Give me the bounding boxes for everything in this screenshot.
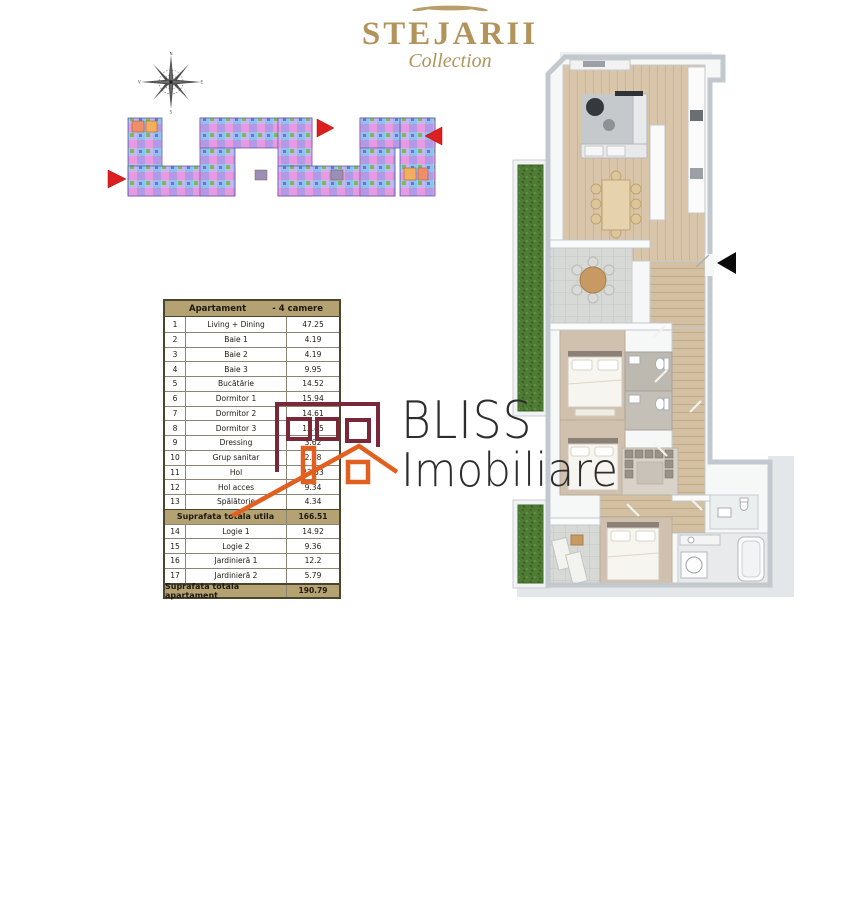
- table-row: 16Jardinieră 112.2: [165, 553, 339, 568]
- area-value: 13.45: [287, 421, 339, 435]
- coffee-table-icon: [603, 119, 615, 131]
- bathroom-3-floor: [710, 495, 758, 529]
- hall-floor-upper: [650, 261, 705, 328]
- room-label: Dormitor 2: [186, 407, 287, 421]
- row-number: 3: [165, 348, 186, 362]
- dining-table: [602, 180, 630, 230]
- table-row: 7Dormitor 214.61: [165, 406, 339, 421]
- kitchen-island: [650, 125, 665, 220]
- site-plan: [105, 108, 450, 203]
- row-number: 1: [165, 317, 186, 332]
- room-label: Baie 3: [186, 362, 287, 376]
- area-value: 14.52: [287, 377, 339, 391]
- area-value: 22.53: [287, 466, 339, 480]
- living-room-furniture: [581, 91, 647, 158]
- row-number: 11: [165, 466, 186, 480]
- row-number: 9: [165, 436, 186, 450]
- area-value: 14.92: [287, 525, 339, 539]
- oak-branch-ornament-icon: [360, 3, 540, 13]
- bedroom-1-furniture: [568, 351, 622, 416]
- armchair-icon: [586, 98, 604, 116]
- row-number: 14: [165, 525, 186, 539]
- table-row: 17Jardinieră 25.79: [165, 568, 339, 583]
- bedroom-3-furniture: [607, 522, 659, 580]
- room-label: Dressing: [186, 436, 287, 450]
- room-label: Jardinieră 1: [186, 554, 287, 568]
- svg-text:E: E: [201, 80, 204, 85]
- summary-label: Suprafata totala utila: [165, 510, 287, 524]
- total-row: Suprafata totala apartament190.79: [165, 583, 339, 598]
- area-value: 9.34: [287, 480, 339, 494]
- table-row: 6Dormitor 115.94: [165, 391, 339, 406]
- row-number: 2: [165, 333, 186, 347]
- area-value: 5.79: [287, 569, 339, 583]
- stove-icon: [690, 110, 703, 121]
- row-number: 13: [165, 495, 186, 509]
- room-label: Dormitor 1: [186, 392, 287, 406]
- area-value: 3.62: [287, 436, 339, 450]
- svg-text:V: V: [138, 80, 141, 85]
- summary-value: 166.51: [287, 510, 339, 524]
- area-value: 2.58: [287, 451, 339, 465]
- summary-label: Suprafata totala apartament: [165, 585, 287, 598]
- area-value: 47.25: [287, 317, 339, 332]
- building-footprint: [128, 118, 435, 196]
- floor-plan: [505, 52, 805, 597]
- marker-middle-icon: [317, 119, 334, 137]
- row-number: 15: [165, 539, 186, 553]
- washing-machine-icon: [681, 552, 707, 578]
- table-row: 1Living + Dining47.25: [165, 317, 339, 332]
- tv-icon: [615, 91, 643, 96]
- table-row: 11Hol22.53: [165, 465, 339, 480]
- sink-icon: [690, 168, 703, 179]
- table-row: 14Logie 114.92: [165, 524, 339, 539]
- table-row: 12Hol acces9.34: [165, 479, 339, 494]
- room-label: Logie 2: [186, 539, 287, 553]
- room-label: Hol acces: [186, 480, 287, 494]
- row-number: 8: [165, 421, 186, 435]
- room-label: Baie 1: [186, 333, 287, 347]
- table-row: 2Baie 14.19: [165, 332, 339, 347]
- room-label: Bucătărie: [186, 377, 287, 391]
- table-row: 8Dormitor 313.45: [165, 420, 339, 435]
- bench: [575, 409, 615, 416]
- area-value: 4.19: [287, 348, 339, 362]
- side-table: [571, 535, 583, 545]
- room-label: Grup sanitar: [186, 451, 287, 465]
- entrance-marker-icon: [717, 252, 736, 274]
- table-title: Apartament: [189, 304, 246, 314]
- planter-jardiniera-1: [513, 160, 548, 416]
- row-number: 6: [165, 392, 186, 406]
- area-table-body: 1Living + Dining47.252Baie 14.193Baie 24…: [165, 317, 339, 597]
- area-value: 12.2: [287, 554, 339, 568]
- subtotal-row: Suprafata totala utila166.51: [165, 509, 339, 524]
- row-number: 10: [165, 451, 186, 465]
- room-label: Jardinieră 2: [186, 569, 287, 583]
- row-number: 17: [165, 569, 186, 583]
- compass-rose-icon: NS EV: [138, 52, 204, 114]
- room-label: Logie 1: [186, 525, 287, 539]
- page-canvas: STEJARII Collection NS EV: [0, 0, 859, 900]
- table-row: 10Grup sanitar2.58: [165, 450, 339, 465]
- table-rooms-count: - 4 camere: [272, 304, 323, 314]
- area-value: 9.36: [287, 539, 339, 553]
- area-value: 14.61: [287, 407, 339, 421]
- table-row: 5Bucătărie14.52: [165, 376, 339, 391]
- area-value: 4.19: [287, 333, 339, 347]
- room-label: Hol: [186, 466, 287, 480]
- room-label: Baie 2: [186, 348, 287, 362]
- room-label: Living + Dining: [186, 317, 287, 332]
- table-row: 3Baie 24.19: [165, 347, 339, 362]
- area-value: 15.94: [287, 392, 339, 406]
- row-number: 5: [165, 377, 186, 391]
- summary-value: 190.79: [287, 585, 339, 598]
- row-number: 12: [165, 480, 186, 494]
- table-row: 13Spălătorie4.34: [165, 494, 339, 509]
- marker-left-icon: [108, 170, 126, 188]
- room-label: Spălătorie: [186, 495, 287, 509]
- svg-text:N: N: [170, 52, 173, 56]
- row-number: 7: [165, 407, 186, 421]
- brand-title: STEJARII: [360, 18, 540, 50]
- row-number: 16: [165, 554, 186, 568]
- row-number: 4: [165, 362, 186, 376]
- planter-jardiniera-2: [513, 500, 548, 588]
- area-value: 9.95: [287, 362, 339, 376]
- table-row: 9Dressing3.62: [165, 435, 339, 450]
- bedroom-2-furniture: [568, 438, 618, 490]
- area-table: Apartament - 4 camere 1Living + Dining47…: [163, 299, 341, 599]
- area-value: 4.34: [287, 495, 339, 509]
- room-label: Dormitor 3: [186, 421, 287, 435]
- area-table-header: Apartament - 4 camere: [165, 301, 339, 317]
- table-row: 4Baie 39.95: [165, 361, 339, 376]
- table-row: 15Logie 29.36: [165, 538, 339, 553]
